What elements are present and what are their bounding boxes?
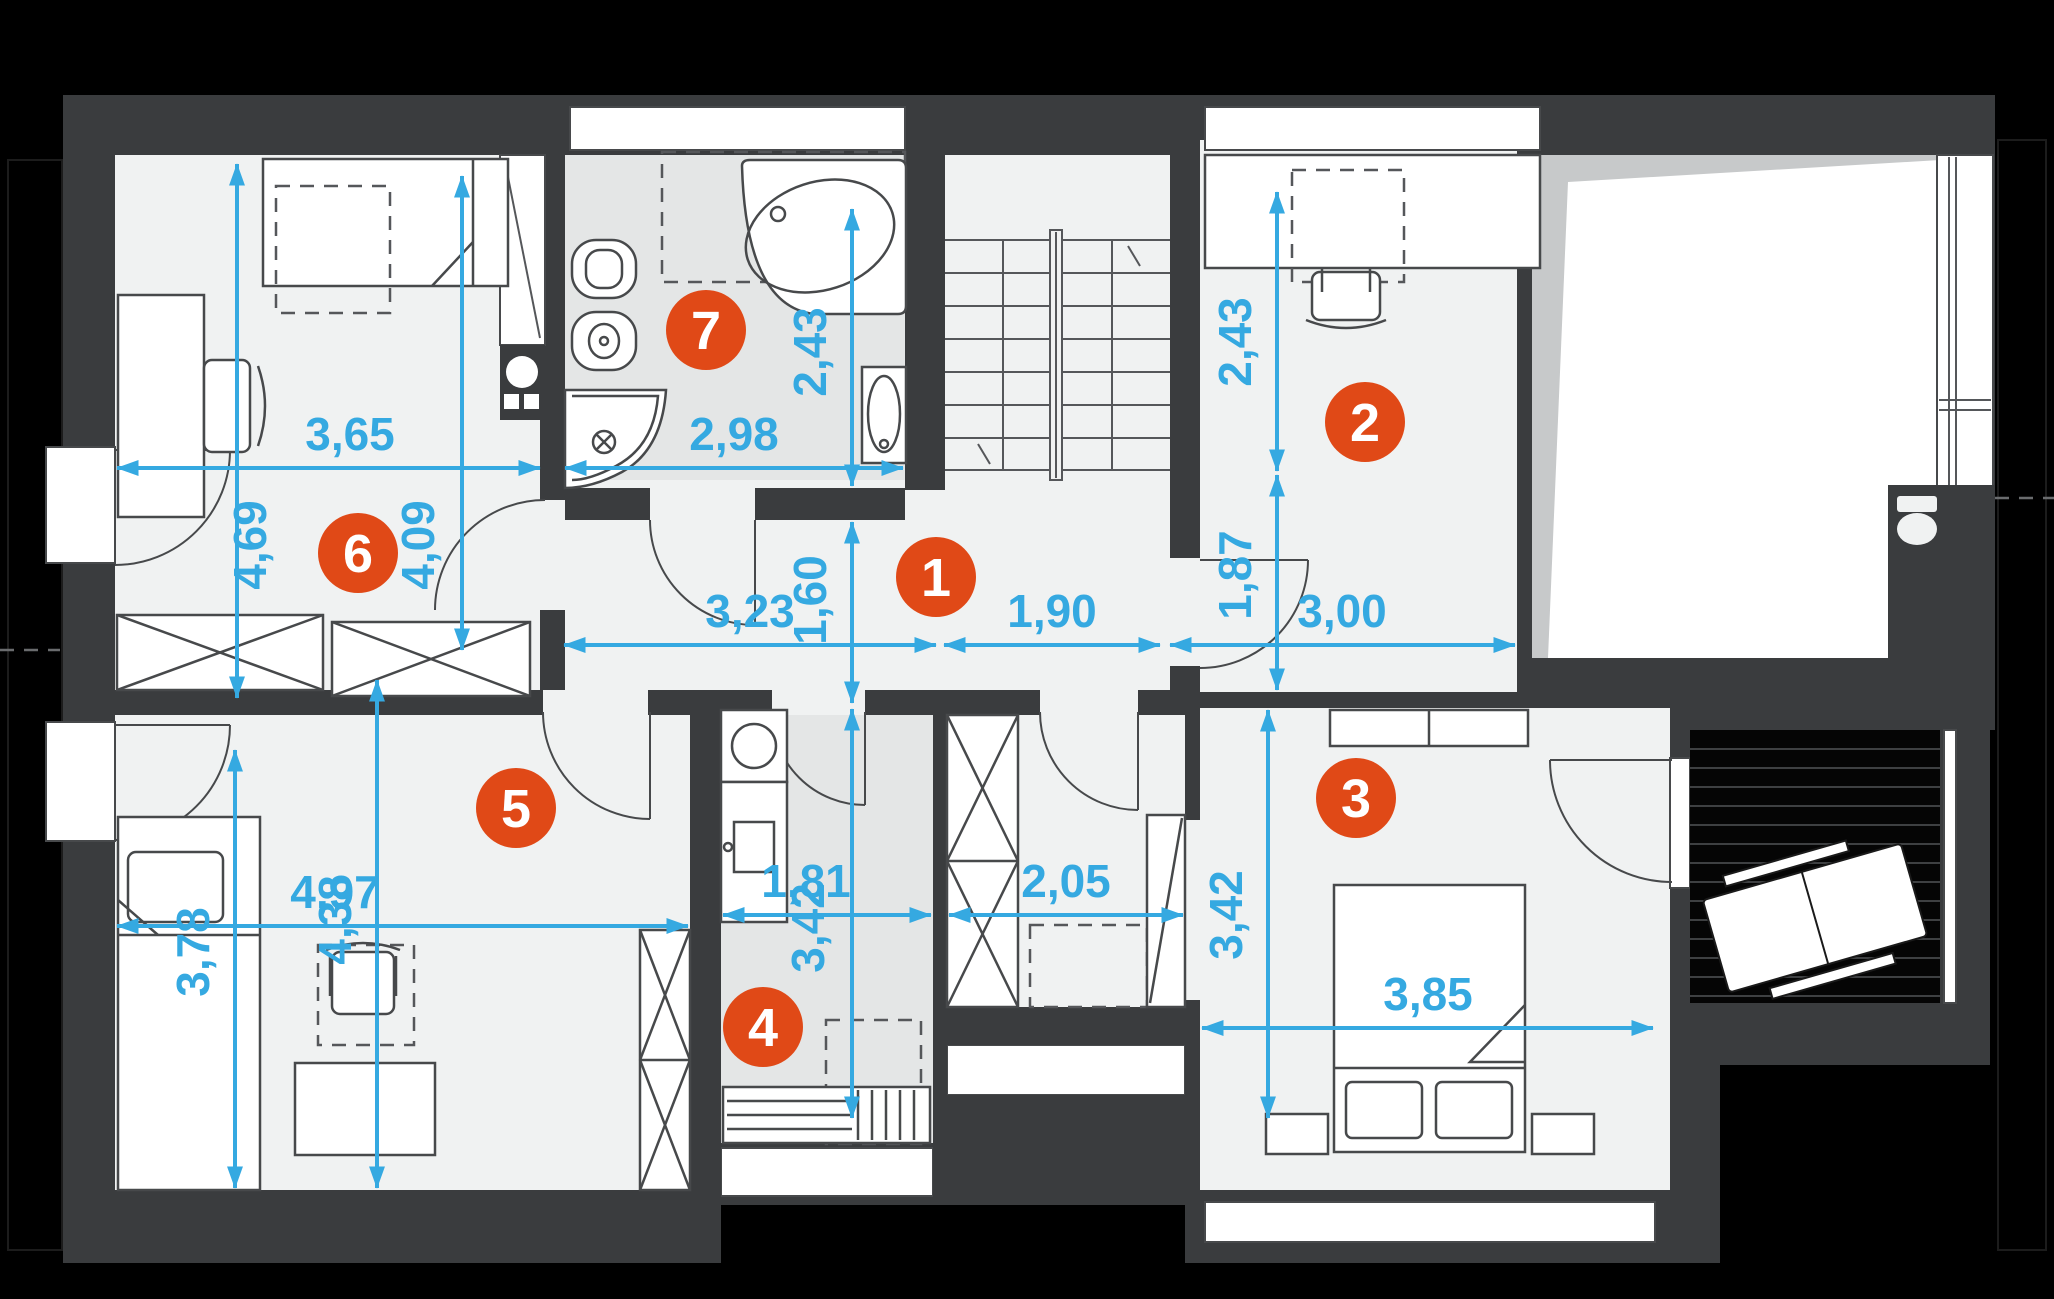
room-badge-4: 4 xyxy=(748,998,778,1058)
dim-room2-width: 3,00 xyxy=(1297,585,1387,637)
washing-machine xyxy=(721,710,787,782)
chair-room6 xyxy=(204,360,250,452)
terrace xyxy=(1690,730,1956,1010)
bidet xyxy=(572,312,636,370)
dim-room2-height-upper: 2,43 xyxy=(1209,297,1261,387)
room-badge-5: 5 xyxy=(501,779,531,839)
dim-hall-width-right: 1,90 xyxy=(1007,585,1097,637)
room-2-window xyxy=(1205,107,1540,150)
room-badge-7: 7 xyxy=(691,301,721,361)
wardrobe-room5 xyxy=(640,930,690,1190)
dim-room4-height: 3,42 xyxy=(782,883,834,973)
dim-room3-width: 3,85 xyxy=(1383,968,1473,1020)
bed-single-room5 xyxy=(118,817,260,1190)
nightstand-left xyxy=(1266,1114,1328,1154)
toilet xyxy=(572,240,636,298)
sliding-panel xyxy=(1147,815,1185,1007)
bed-single-room6 xyxy=(263,159,508,286)
dim-room6-height-left: 4,69 xyxy=(224,500,276,590)
floor-plan-drawing: 3,65 2,98 3,23 1,90 3,00 4,97 1,81 2,05 … xyxy=(0,0,2054,1299)
sink xyxy=(862,367,906,463)
dim-bath-height: 2,43 xyxy=(784,307,836,397)
chimney-pipe xyxy=(1897,513,1937,545)
desk-room5 xyxy=(295,1063,435,1155)
room-badge-2: 2 xyxy=(1350,393,1380,453)
room-badge-3: 3 xyxy=(1341,769,1371,829)
void-area xyxy=(1532,155,1995,658)
wardrobe-room6 xyxy=(117,615,530,696)
dim-hall-height: 1,60 xyxy=(784,555,836,645)
desk-room6 xyxy=(118,295,204,517)
right-window xyxy=(1937,155,1993,490)
bathroom-window xyxy=(570,107,905,150)
drying-rack xyxy=(723,1087,930,1143)
nightstand-right xyxy=(1532,1114,1594,1154)
desk-counter-room2 xyxy=(1205,155,1540,268)
dim-room6-width: 3,65 xyxy=(305,408,395,460)
dim-room5-height-left: 3,78 xyxy=(167,907,219,997)
room-6-balcony-window xyxy=(46,447,115,563)
dim-room2-height-lower: 1,87 xyxy=(1209,530,1261,620)
chimney-cap xyxy=(1897,496,1937,512)
room-5-balcony-window xyxy=(46,722,115,841)
chair-room2 xyxy=(1306,268,1386,328)
dim-bath-width: 2,98 xyxy=(689,408,779,460)
room-badge-6: 6 xyxy=(343,524,373,584)
dim-room6-height-right: 4,09 xyxy=(392,500,444,590)
wardrobe-closet xyxy=(947,715,1018,1007)
room-badge-1: 1 xyxy=(921,548,951,608)
dim-room3-height: 3,42 xyxy=(1200,870,1252,960)
dim-closet-width: 2,05 xyxy=(1021,855,1111,907)
floor-plan-canvas: 3,65 2,98 3,23 1,90 3,00 4,97 1,81 2,05 … xyxy=(0,0,2054,1299)
dim-room5-height-right: 4,38 xyxy=(309,875,361,965)
terrace-railing xyxy=(1944,730,1956,1003)
dim-hall-width-left: 3,23 xyxy=(705,585,795,637)
